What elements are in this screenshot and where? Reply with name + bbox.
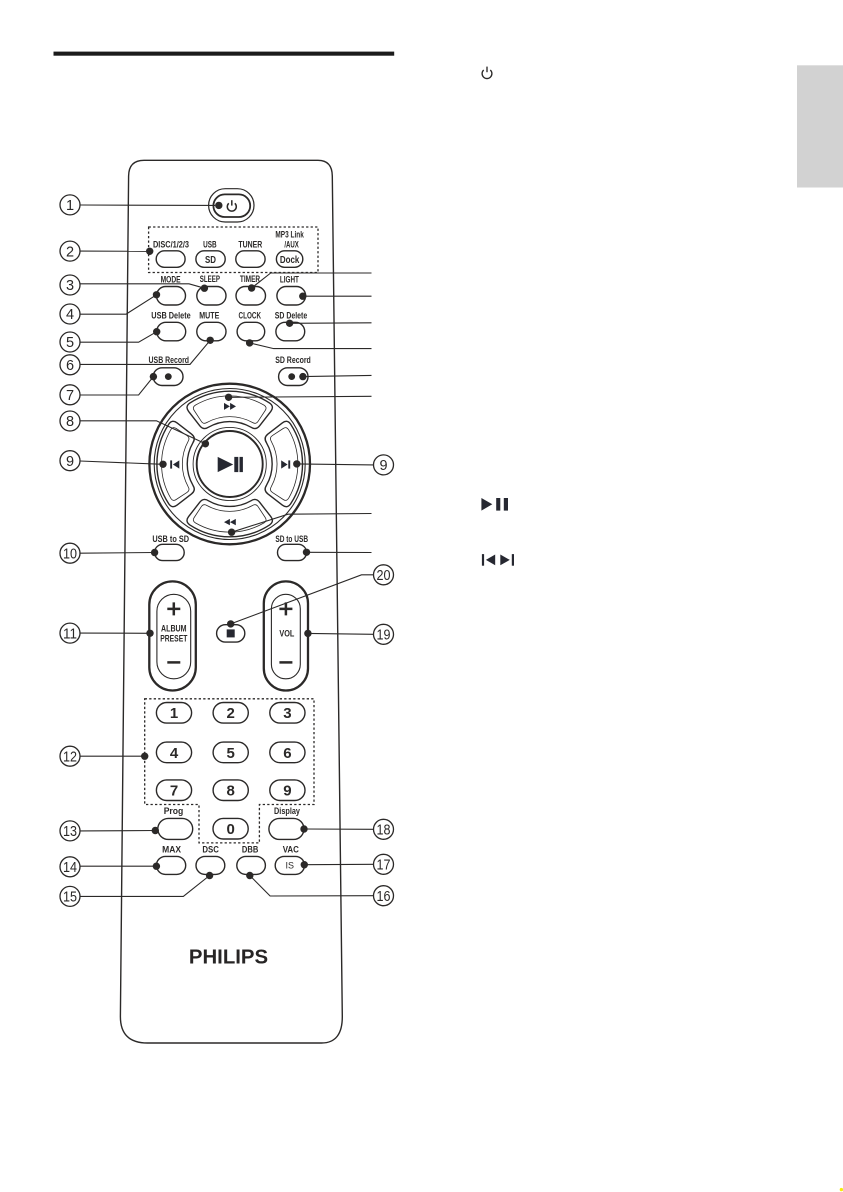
svg-text:MAX: MAX (162, 845, 181, 856)
svg-text:0: 0 (227, 821, 235, 838)
svg-text:SD: SD (205, 255, 216, 266)
svg-text:LIGHT: LIGHT (280, 275, 299, 286)
svg-text:9: 9 (379, 458, 387, 474)
svg-text:1: 1 (66, 198, 74, 214)
svg-text:4: 4 (66, 307, 74, 323)
svg-text:7: 7 (170, 783, 178, 800)
svg-text:6: 6 (66, 358, 74, 374)
svg-text:4: 4 (170, 745, 179, 762)
svg-text:14: 14 (63, 860, 77, 876)
svg-text:10: 10 (63, 546, 77, 562)
svg-text:7: 7 (66, 388, 74, 404)
svg-text:3: 3 (283, 705, 291, 722)
svg-text:USB: USB (203, 240, 217, 251)
svg-text:IS: IS (286, 860, 295, 870)
svg-text:11: 11 (63, 626, 77, 642)
svg-text:8: 8 (227, 783, 235, 800)
svg-text:6: 6 (283, 745, 291, 762)
svg-text:16: 16 (377, 889, 391, 905)
svg-text:12: 12 (63, 749, 77, 765)
svg-text:VAC: VAC (283, 845, 299, 856)
svg-text:USB to SD: USB to SD (152, 534, 189, 545)
svg-text:TUNER: TUNER (238, 240, 262, 251)
svg-text:19: 19 (377, 628, 391, 644)
svg-text:8: 8 (66, 414, 74, 430)
svg-text:PHILIPS: PHILIPS (189, 947, 268, 969)
svg-text:20: 20 (377, 568, 391, 584)
svg-text:/AUX: /AUX (284, 240, 299, 251)
svg-text:DISC/1/2/3: DISC/1/2/3 (153, 240, 189, 251)
svg-text:DBB: DBB (242, 845, 259, 856)
svg-text:15: 15 (63, 890, 77, 906)
svg-text:2: 2 (66, 244, 74, 260)
svg-text:USB Delete: USB Delete (151, 310, 190, 321)
svg-text:3: 3 (66, 278, 74, 294)
svg-text:Display: Display (274, 806, 300, 817)
svg-text:18: 18 (377, 823, 391, 839)
svg-text:SD Record: SD Record (275, 355, 311, 366)
svg-text:PRESET: PRESET (160, 634, 188, 644)
svg-text:2: 2 (227, 705, 235, 722)
svg-text:5: 5 (66, 335, 74, 351)
svg-text:VOL: VOL (279, 629, 295, 639)
svg-text:Dock: Dock (280, 255, 300, 266)
svg-text:CLOCK: CLOCK (239, 310, 262, 321)
svg-text:1: 1 (170, 705, 178, 722)
svg-text:MUTE: MUTE (199, 310, 219, 321)
svg-text:SLEEP: SLEEP (200, 274, 221, 285)
svg-text:17: 17 (377, 858, 391, 874)
svg-text:DSC: DSC (202, 845, 219, 856)
svg-text:Prog: Prog (164, 806, 184, 817)
svg-text:SD Delete: SD Delete (275, 310, 307, 321)
svg-text:9: 9 (66, 454, 74, 470)
svg-text:ALBUM: ALBUM (161, 624, 187, 634)
svg-text:9: 9 (283, 783, 291, 800)
svg-text:5: 5 (227, 745, 235, 762)
svg-text:13: 13 (63, 824, 77, 840)
svg-text:SD to USB: SD to USB (275, 534, 308, 545)
svg-text:MP3 Link: MP3 Link (275, 229, 304, 240)
